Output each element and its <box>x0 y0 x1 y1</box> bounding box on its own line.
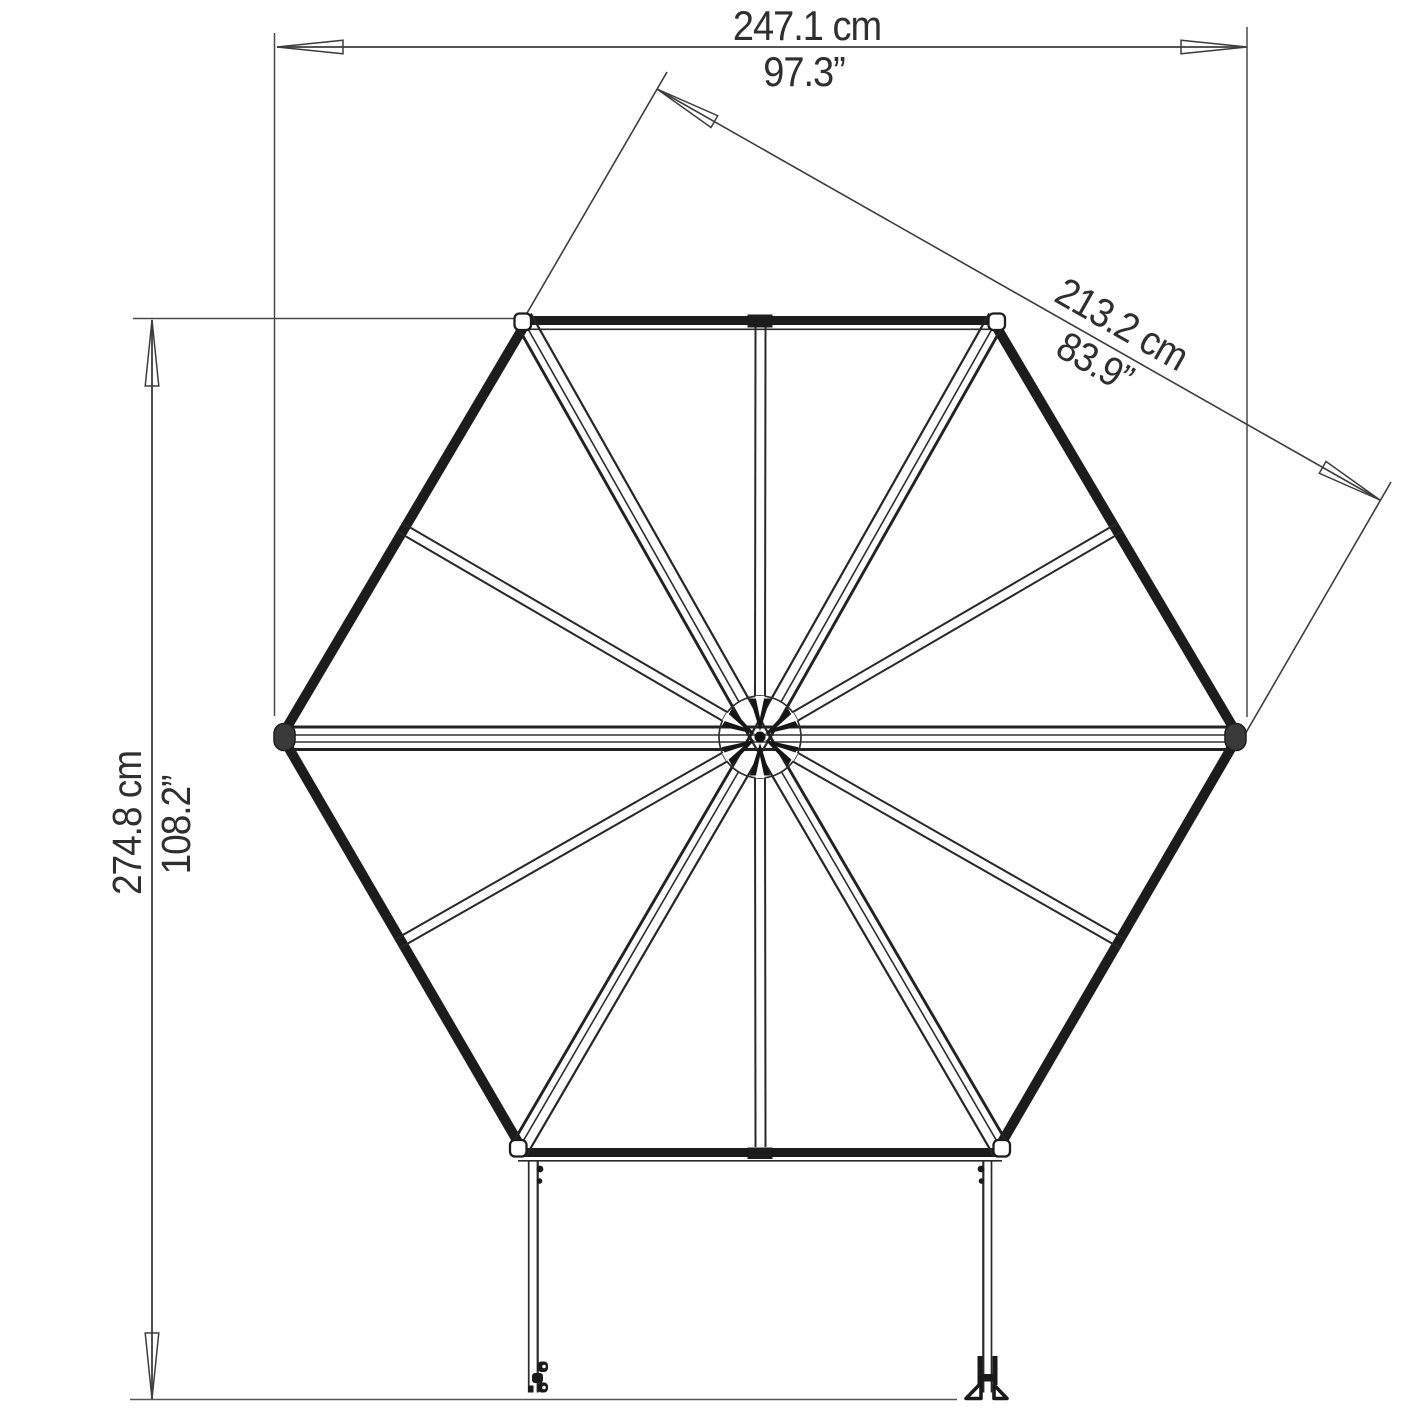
svg-text:247.1 cm: 247.1 cm <box>733 3 881 49</box>
svg-text:97.3”: 97.3” <box>763 49 845 95</box>
svg-text:274.8 cm: 274.8 cm <box>105 751 150 895</box>
svg-text:108.2”: 108.2” <box>154 775 199 874</box>
